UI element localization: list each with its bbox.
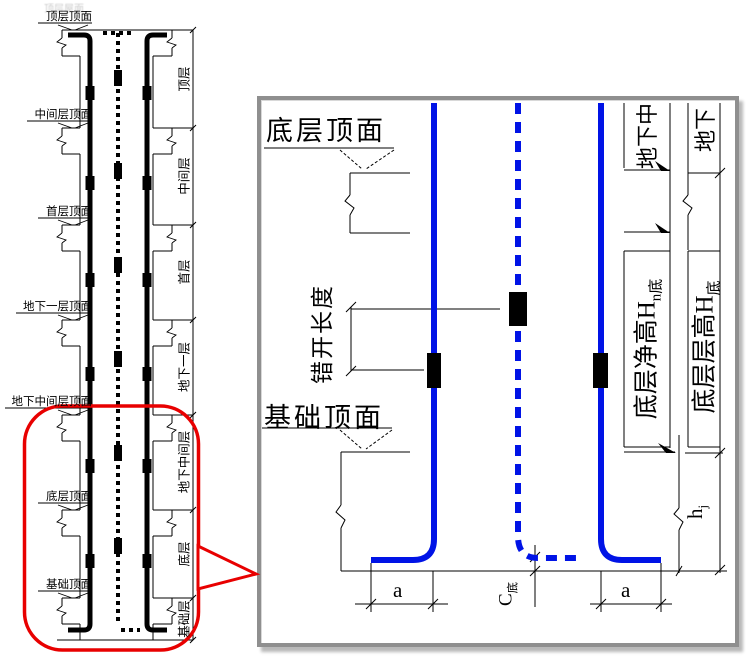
floor-label-middle: 中间层 — [174, 157, 193, 195]
detail-top-surface-leader — [340, 150, 394, 169]
detail-left-bar — [371, 103, 434, 560]
stagger-dimension — [346, 302, 500, 376]
bottom-dim-right-a — [590, 563, 672, 612]
overview-right-bar — [147, 35, 167, 630]
upper-floor-label-basement-mid: 地下中 — [630, 103, 662, 169]
foundation-height-label: hj — [683, 505, 711, 519]
red-callout — [25, 406, 257, 650]
detail-foundation-surface-label: 基础顶面 — [264, 396, 384, 435]
floor-label-bottom: 底层 — [174, 541, 193, 566]
floor-label-top: 顶层 — [174, 66, 193, 91]
leader-label-top-roof: 顶层顶面 — [46, 8, 92, 24]
hj-sub: j — [696, 505, 710, 509]
leader-label-bottom-top: 底层顶面 — [46, 488, 92, 504]
story-height-sub: 底 — [707, 280, 723, 295]
clear-height-label: 底层净高Hn底 — [627, 279, 666, 420]
dim-a-left-label: a — [393, 578, 402, 603]
detail-middle-bar-dashed — [518, 103, 578, 558]
story-height-text: 底层层高H — [692, 295, 719, 413]
leader-label-middle-top: 中间层顶面 — [35, 106, 93, 122]
leader-label-basement-mid-top: 地下中间层顶面 — [12, 393, 93, 409]
leader-label-first-top: 首层顶面 — [46, 203, 92, 219]
clear-height-sub: n底 — [649, 279, 665, 302]
detail-top-surface-callout — [264, 148, 410, 233]
detail-foundation-break — [336, 505, 345, 528]
detail-top-surface-label: 底层顶面 — [266, 109, 386, 148]
clear-height-text: 底层净高H — [634, 301, 661, 419]
overview-left-bar — [68, 35, 90, 630]
c-base-text: C — [496, 593, 517, 606]
floor-label-basement1: 地下一层 — [174, 342, 193, 392]
story-height-label: 底层层高H底 — [685, 280, 724, 413]
floor-label-first: 首层 — [174, 259, 193, 284]
callout-pointer — [198, 546, 256, 589]
leader-label-basement1-top: 地下一层顶面 — [23, 298, 92, 314]
c-base-label: C底 — [496, 582, 521, 606]
stagger-length-label: 错开长度 — [303, 284, 337, 384]
floor-label-foundation: 基础层 — [174, 600, 193, 638]
detail-rebar — [371, 103, 661, 560]
overview-rebar — [68, 33, 167, 630]
floor-label-basement-mid: 地下中间层 — [174, 431, 193, 494]
leader-label-foundation-top: 基础顶面 — [46, 576, 92, 592]
detail-top-break — [345, 195, 354, 215]
overview-lap-blocks — [86, 70, 152, 568]
dim-a-right-label: a — [621, 578, 630, 603]
upper-floor-label-basement: 地下 — [688, 108, 720, 152]
c-base-sub: 底 — [507, 582, 519, 593]
hj-text: h — [683, 509, 707, 520]
drawing-canvas: 顶层屋面 顶层顶面 中间层顶面 首层顶面 地下一层顶面 地下中间层顶面 底层顶面… — [0, 0, 746, 658]
detail-foundation-callout — [262, 428, 410, 571]
